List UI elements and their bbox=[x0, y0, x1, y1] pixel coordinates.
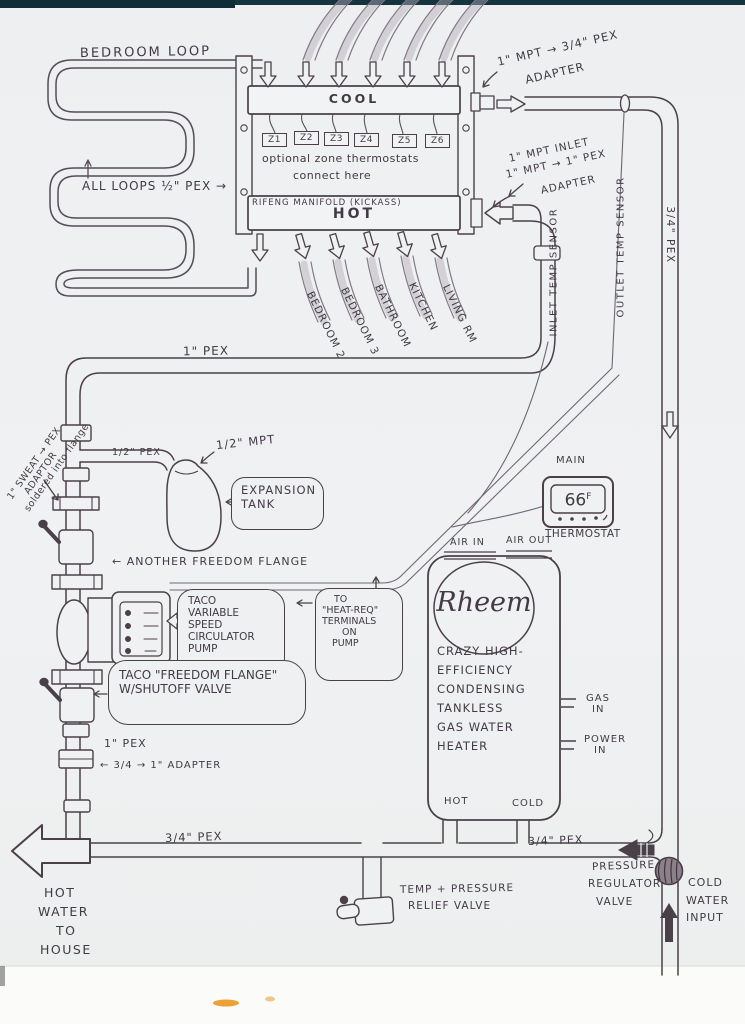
pump-line4: CIRCULATOR bbox=[188, 631, 284, 643]
all-loops-note: ALL LOOPS ½" PEX → bbox=[82, 180, 227, 193]
bedroom-loop-tubing bbox=[48, 60, 262, 296]
bottom-right-pipe-label: 3/4" PEX bbox=[528, 834, 584, 848]
gas-in-ticks bbox=[561, 699, 576, 707]
pump-terminal bbox=[126, 649, 131, 654]
scanned-hydronic-diagram: BEDROOM LOOP ALL LOOPS ½" PEX → COOL Z1 … bbox=[0, 0, 745, 1024]
shutoff-line2: W/SHUTOFF VALVE bbox=[119, 682, 305, 696]
outlet-temp-sensor-label: OUTLET TEMP SENSOR bbox=[616, 188, 627, 318]
heatreq-line4: ON bbox=[322, 627, 402, 638]
right-pipe-size-label: 3/4" PEX bbox=[664, 195, 676, 275]
power-word: POWER bbox=[584, 734, 626, 745]
house-line3: TO bbox=[56, 924, 76, 938]
heat-req-callout: TO "HEAT-REQ" TERMINALS ON PUMP bbox=[315, 588, 403, 681]
thermostat-location-label: MAIN bbox=[556, 455, 586, 466]
zone-z3: Z3 bbox=[324, 132, 349, 146]
pump-terminal bbox=[126, 624, 131, 629]
flow-arrow-right bbox=[497, 96, 525, 112]
flow-arrow-left-inlet bbox=[485, 202, 513, 224]
gas-in-label: GAS IN bbox=[586, 693, 610, 715]
heater-cold-port-label: COLD bbox=[512, 798, 544, 809]
power-in-label: POWER IN bbox=[584, 734, 626, 756]
house-line1: HOT bbox=[44, 886, 75, 900]
manifold-hot-label: HOT bbox=[248, 207, 460, 223]
circulator-pump bbox=[57, 592, 170, 664]
hot-water-out-arrow bbox=[12, 825, 90, 877]
expansion-tank-shape bbox=[167, 460, 221, 551]
freedom-flange-2 bbox=[52, 575, 102, 589]
shutoff-callout: TACO "FREEDOM FLANGE" W/SHUTOFF VALVE bbox=[108, 660, 306, 725]
zone-z2: Z2 bbox=[294, 131, 319, 145]
another-freedom-flange-note: ← ANOTHER FREEDOM FLANGE bbox=[112, 556, 308, 568]
inlet-temp-sensor-label: INLET TEMP SENSOR bbox=[549, 227, 560, 337]
zone-z5: Z5 bbox=[392, 134, 417, 148]
expansion-tank-callout: EXPANSION TANK bbox=[231, 477, 324, 530]
main-supply-pipe-label: 1" PEX bbox=[183, 345, 229, 359]
shutoff-valve bbox=[40, 679, 94, 723]
pump-line3: SPEED bbox=[188, 619, 284, 631]
heater-desc-5: GAS WATER bbox=[437, 718, 557, 737]
pump-line1: TACO bbox=[188, 595, 284, 607]
heater-brand: Rheem bbox=[434, 588, 534, 618]
heater-desc-6: HEATER bbox=[437, 737, 557, 756]
flow-arrows-cool bbox=[260, 62, 450, 87]
thermostat-temp: 66 bbox=[565, 491, 587, 511]
power-in-word: IN bbox=[584, 745, 626, 756]
zone-z1: Z1 bbox=[262, 133, 287, 147]
prv-line3: VALVE bbox=[596, 897, 633, 909]
pump-line5: PUMP bbox=[188, 643, 284, 655]
zone-note-line1: optional zone thermostats bbox=[262, 153, 419, 165]
heater-port-pipes bbox=[443, 820, 529, 843]
house-line2: WATER bbox=[38, 905, 89, 919]
zone-z6: Z6 bbox=[425, 134, 450, 148]
heatreq-line1: TO bbox=[322, 594, 402, 605]
heater-description: CRAZY HIGH- EFFICIENCY CONDENSING TANKLE… bbox=[437, 642, 557, 756]
freedom-flange-3 bbox=[52, 670, 102, 684]
cold-in-line2: WATER bbox=[686, 895, 729, 907]
heatreq-line3: TERMINALS bbox=[322, 616, 402, 627]
cool-return-tubes bbox=[303, 0, 492, 60]
flow-arrow-down-right-pipe bbox=[662, 412, 678, 438]
manifold-cool-label: COOL bbox=[248, 92, 460, 106]
heater-desc-2: EFFICIENCY bbox=[437, 661, 557, 680]
bottom-left-pipe-label: 3/4" PEX bbox=[165, 830, 223, 845]
expansion-line1: EXPANSION bbox=[241, 483, 323, 497]
zone-note-line2: connect here bbox=[293, 170, 371, 182]
prv-line1: PRESSURE bbox=[592, 860, 656, 874]
heater-desc-3: CONDENSING bbox=[437, 680, 557, 699]
gas-word: GAS bbox=[586, 693, 610, 704]
cold-in-line3: INPUT bbox=[686, 912, 724, 924]
outlet-temp-sensor-bulb bbox=[621, 95, 630, 112]
freedom-flange-1 bbox=[53, 497, 99, 510]
thermostat-label: THERMOSTAT bbox=[545, 529, 621, 541]
tp-valve-line2: RELIEF VALVE bbox=[408, 901, 491, 913]
expansion-line2: TANK bbox=[241, 497, 323, 511]
riser-adapter-label: ← 3/4 → 1" ADAPTER bbox=[100, 760, 221, 771]
tp-valve-line1: TEMP + PRESSURE bbox=[400, 883, 514, 897]
orange-smudge bbox=[213, 1000, 239, 1007]
heater-desc-1: CRAZY HIGH- bbox=[437, 642, 557, 661]
zone-z4: Z4 bbox=[354, 133, 379, 147]
air-out-label: AIR OUT bbox=[506, 536, 552, 547]
house-line4: HOUSE bbox=[40, 943, 92, 957]
pump-line2: VARIABLE bbox=[188, 607, 284, 619]
heater-hot-port-label: HOT bbox=[444, 796, 469, 807]
bedroom-loop-title: BEDROOM LOOP bbox=[80, 45, 211, 62]
tp-relief-valve bbox=[336, 857, 394, 925]
pump-terminal bbox=[126, 611, 131, 616]
gas-in-word: IN bbox=[586, 704, 610, 715]
pump-terminal bbox=[126, 637, 131, 642]
half-branch-pipe-label: 1/2" PEX bbox=[112, 448, 161, 459]
heatreq-line5: PUMP bbox=[322, 638, 402, 649]
thermostat-unit: F bbox=[586, 492, 591, 502]
thermostat-display: 66F bbox=[551, 483, 605, 511]
air-in-label: AIR IN bbox=[450, 538, 485, 549]
prv-line2: REGULATOR bbox=[588, 879, 661, 891]
riser-adapter bbox=[59, 750, 93, 768]
left-riser-assembly bbox=[39, 425, 170, 812]
air-ducts bbox=[444, 551, 552, 559]
cold-in-line1: COLD bbox=[688, 877, 723, 889]
heater-desc-4: TANKLESS bbox=[437, 699, 557, 718]
shutoff-line1: TACO "FREEDOM FLANGE" bbox=[119, 668, 305, 682]
flow-arrows-hot bbox=[252, 230, 449, 261]
riser-pipe-label: 1" PEX bbox=[104, 738, 147, 750]
power-in-ticks bbox=[561, 741, 576, 749]
orange-smudge-small bbox=[265, 997, 275, 1002]
heatreq-line2: "HEAT-REQ" bbox=[322, 605, 402, 616]
